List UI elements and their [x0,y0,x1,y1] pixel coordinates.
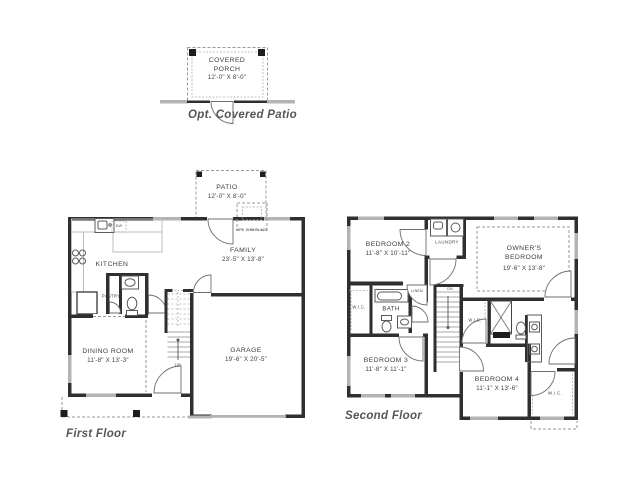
family-label: FAMILY [230,247,256,255]
dryer-icon [448,219,464,236]
garage-wall [190,293,194,418]
garage-door-arc [194,275,212,293]
owners-door-arc [545,271,571,297]
window [358,217,384,221]
dining-dims: 11'-8" X 13'-3" [87,357,129,365]
pantry-door-arc [110,302,121,313]
front-porch [61,397,213,419]
stairs-down-label: DN [447,287,453,291]
window [347,356,351,386]
dining-label: DINING ROOM [82,348,133,356]
stove-burner-icon [80,258,86,264]
owners-bedroom-dims: 19'-6" X 13'-8" [503,265,545,273]
toilet-icon [382,321,391,332]
family-dims: 23'-5" X 13'-8" [222,256,264,264]
window [361,394,385,398]
interior-wall [370,285,373,334]
toilet-tank [127,311,138,316]
bedroom4-label: BEDROOM 4 [475,376,519,384]
wic-mid-label: W.I.C. [468,317,481,322]
bedroom3-dims: 11'-8" X 11'-1" [365,366,406,374]
island-counter [113,232,162,252]
floorplan-page: COVERED PORCH 12'-0" X 8'-0" Opt. Covere… [0,0,640,480]
toilet-icon [517,322,526,334]
toilet-tank [382,316,392,321]
covered-porch-label: COVERED PORCH [198,57,256,75]
porch-post [133,410,140,417]
shower-seat [493,332,510,338]
window [347,226,351,250]
stairs-down [437,292,460,362]
wic-right-label: W.I.C. [548,390,562,396]
porch-post [61,410,68,417]
floorplan-linework [0,0,640,480]
sink-basin [532,346,538,352]
stair-wall [183,289,193,292]
stairs-up [165,289,194,360]
bedroom4-door-arc [460,347,484,371]
wall-segment [160,100,188,104]
second-floor-caption: Second Floor [345,410,422,422]
garage-dims: 19'-6" X 20'-5" [225,356,267,364]
bath-door-arc [412,306,428,322]
window [534,217,558,221]
toilet-tank [516,335,526,339]
porch-post [258,49,265,56]
wall-segment [267,100,295,104]
porch-post [189,49,196,56]
window [575,310,579,334]
laundry-label: LAUNDRY [435,239,459,245]
laundry-fixtures [431,219,464,236]
first-floor-caption: First Floor [66,428,126,440]
toilet-icon [127,297,137,309]
stair-arrow-dot [447,326,450,329]
bedroom2-dims: 11'-8" X 10'-11" [366,250,411,258]
stove-burner-icon [80,250,86,256]
interior-wall [528,344,532,421]
stove-burner-icon [73,258,79,264]
garage-wall [285,415,305,419]
porch-dashed-outline [62,397,194,417]
patio-dims: 12'-0" X 8'-0" [208,193,246,201]
garage-door [210,415,286,418]
window [391,394,415,398]
bath-label: BATH [382,306,399,314]
window [68,355,72,383]
kitchen-label: KITCHEN [96,261,129,269]
window [575,233,579,259]
fridge-icon [77,292,97,314]
bath-sink-icon [122,276,139,289]
stair-wall [165,289,168,333]
detail-caption: Opt. Covered Patio [188,109,297,121]
patio-label: PATIO [216,184,237,192]
patio-post [197,172,203,178]
garage-label: GARAGE [230,347,261,355]
bedroom3-label: BEDROOM 3 [364,357,408,365]
stairs-up-label: UP [175,362,181,367]
linen-label: LINEN [411,289,423,293]
counter [72,232,84,292]
exterior-wall [302,217,306,418]
stove-burner-icon [73,250,79,256]
wic-left-label: W.I.C. [352,304,365,309]
owners-bedroom-label: OWNER'S BEDROOM [496,245,552,263]
bedroom2-label: BEDROOM 2 [366,241,410,249]
interior-wall [425,334,429,398]
window [264,217,290,221]
patio-post [260,172,266,178]
window [540,417,564,421]
covered-porch-dims: 12'-0" X 8'-0" [208,74,246,82]
laundry-door-arc [430,259,456,285]
bath-sink-icon [398,316,412,328]
dishwasher-label: DW [116,224,122,228]
opt-fireplace-label: OPT. FIREPLACE [236,228,268,232]
bath-door-arc [149,295,167,313]
window [86,394,116,398]
fireplace-dashed-outline [237,203,267,230]
pantry-label: PANTRY [102,293,120,298]
roof-dashed-outline [531,421,577,429]
first-floor-plan [61,171,306,419]
bedroom4-dims: 11'-1" X 13'-6" [476,385,518,393]
front-door-arc [154,366,181,393]
sink-basin [532,324,538,330]
stair-wall [434,284,437,372]
window [470,417,498,421]
owners-bath-fixtures [491,301,542,362]
vanity-sink-icon [530,322,540,332]
window [494,217,518,221]
interior-wall [145,273,149,315]
porch-step [188,416,212,419]
exterior-wall [460,394,464,420]
owners-bath-door-arc [549,338,575,364]
patio-door-arc [208,219,233,244]
